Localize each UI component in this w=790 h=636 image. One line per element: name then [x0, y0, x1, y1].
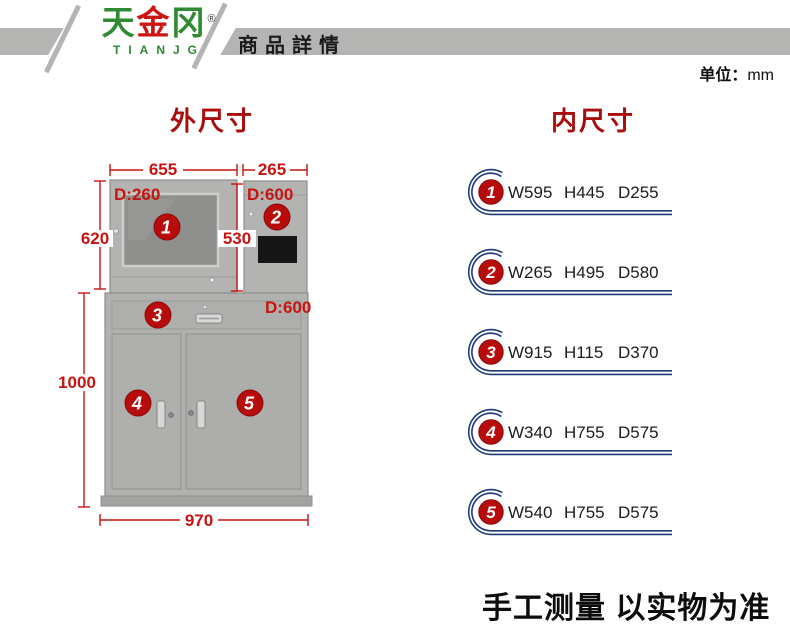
inner-dimensions-title: 内尺寸 [551, 101, 635, 138]
dim-depth-lower: D:600 [265, 298, 311, 317]
dim-depth-top-left: D:260 [114, 185, 160, 204]
spec-height: H755 [564, 423, 605, 442]
cabinet-diagram: 655 265 620 530 1000 970 D:260 D:600 D:6… [50, 140, 340, 540]
spec-width: W915 [508, 343, 552, 362]
spec-height: H495 [564, 263, 605, 282]
spec-marker-number: 3 [486, 343, 496, 362]
spec-height: H755 [564, 503, 605, 522]
dim-height-lower: 1000 [58, 373, 96, 392]
brand-logo-latin: TIANJG [84, 43, 234, 57]
unit-label: 单位： [699, 67, 747, 84]
logo-char-gang: 冈 [171, 4, 206, 41]
outer-dimensions-title: 外尺寸 [170, 101, 254, 138]
spec-width: W265 [508, 263, 552, 282]
page-title: 商品詳情 [238, 29, 346, 58]
dim-width-top-right: 265 [258, 160, 286, 179]
spec-marker-number: 5 [486, 503, 496, 522]
spec-depth: D575 [618, 423, 659, 442]
dim-height-upper-mid: 530 [223, 229, 251, 248]
spec-height: H445 [564, 183, 605, 202]
product-detail-page: 天金冈® TIANJG 商品詳情 单位：mm 外尺寸 内尺寸 [0, 0, 790, 636]
left-door-handle [157, 401, 165, 428]
marker-4-label: 4 [131, 394, 142, 414]
logo-char-jin: 金 [136, 4, 171, 41]
spec-item-2: 2 W265 H495 D580 [458, 244, 676, 306]
spec-item-1: 1 W595 H445 D255 [458, 164, 676, 226]
side-opening [258, 236, 297, 263]
spec-marker-number: 4 [485, 423, 496, 442]
logo-char-tian: 天 [101, 4, 136, 41]
right-door-lock [189, 411, 194, 416]
marker-3-label: 3 [152, 306, 162, 326]
measurement-disclaimer: 手工测量 以实物为准 [482, 583, 770, 627]
spec-item-3: 3 W915 H115 D370 [458, 324, 676, 386]
registered-trademark-icon: ® [207, 13, 217, 25]
left-door-lock [169, 413, 174, 418]
right-door-handle [197, 401, 205, 428]
dim-width-top-left: 655 [149, 160, 177, 179]
spec-height: H115 [564, 343, 603, 362]
dim-depth-top-right: D:600 [247, 185, 293, 204]
spec-depth: D255 [618, 183, 659, 202]
spec-depth: D580 [618, 263, 659, 282]
brand-logo: 天金冈® TIANJG [84, 4, 234, 57]
spec-depth: D370 [618, 343, 659, 362]
spec-depth: D575 [618, 503, 659, 522]
cabinet-base [101, 496, 312, 506]
marker-5-label: 5 [244, 394, 255, 414]
dim-height-upper-left: 620 [81, 229, 109, 248]
marker-1-label: 1 [161, 218, 171, 238]
spec-item-5: 5 W540 H755 D575 [458, 484, 676, 546]
spec-marker-number: 2 [485, 263, 496, 282]
unit-value: mm [747, 67, 774, 84]
marker-2-label: 2 [270, 208, 281, 228]
dim-width-bottom: 970 [185, 511, 213, 530]
unit-note: 单位：mm [699, 61, 774, 85]
spec-marker-number: 1 [486, 183, 495, 202]
brand-logo-characters: 天金冈® [84, 4, 234, 42]
spec-width: W340 [508, 423, 552, 442]
spec-item-4: 4 W340 H755 D575 [458, 404, 676, 466]
spec-width: W595 [508, 183, 552, 202]
spec-width: W540 [508, 503, 552, 522]
